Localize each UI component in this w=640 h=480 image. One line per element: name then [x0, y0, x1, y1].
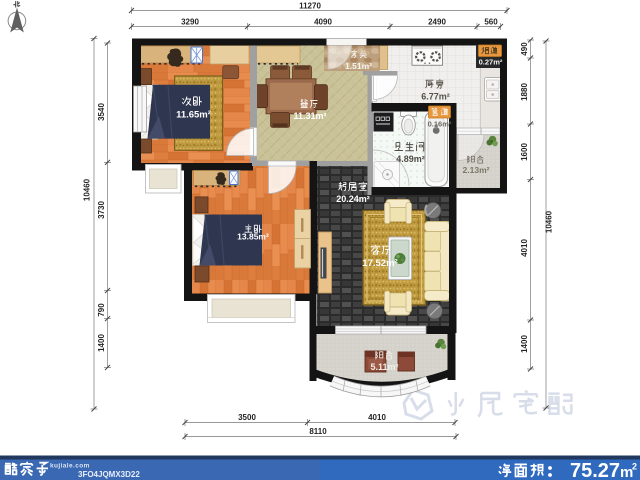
- svg-text:20.24m²: 20.24m²: [336, 194, 370, 204]
- svg-text:3540: 3540: [97, 103, 106, 121]
- svg-text:3290: 3290: [181, 18, 199, 27]
- svg-text:1600: 1600: [520, 143, 529, 161]
- svg-text:0.16m²: 0.16m²: [428, 120, 452, 129]
- svg-text:3500: 3500: [238, 413, 256, 422]
- svg-text:2490: 2490: [428, 18, 446, 27]
- svg-text:4010: 4010: [520, 239, 529, 257]
- svg-text:10460: 10460: [545, 210, 554, 233]
- svg-text:1.51m²: 1.51m²: [345, 61, 372, 71]
- svg-text:6.77m²: 6.77m²: [421, 92, 450, 102]
- svg-text:4010: 4010: [368, 413, 386, 422]
- svg-text:1880: 1880: [520, 83, 529, 101]
- svg-text:3730: 3730: [97, 201, 106, 219]
- svg-text:490: 490: [520, 42, 529, 56]
- svg-text:11270: 11270: [299, 2, 321, 11]
- svg-text:5.11m²: 5.11m²: [370, 362, 398, 372]
- svg-text:17.52m²: 17.52m²: [362, 258, 397, 269]
- svg-text:8110: 8110: [309, 427, 327, 436]
- svg-text:560: 560: [484, 18, 498, 27]
- svg-text:2.13m²: 2.13m²: [463, 165, 490, 175]
- svg-text:2: 2: [632, 462, 637, 472]
- svg-text:1400: 1400: [97, 334, 106, 352]
- svg-text:75.27: 75.27: [570, 460, 620, 480]
- svg-text:790: 790: [97, 303, 106, 317]
- svg-text:kujiale.com: kujiale.com: [50, 463, 90, 470]
- svg-text:10460: 10460: [83, 178, 92, 201]
- svg-text:11.31m²: 11.31m²: [293, 111, 326, 121]
- svg-text:11.65m²: 11.65m²: [176, 110, 211, 121]
- svg-text:4.89m²: 4.89m²: [396, 154, 425, 164]
- svg-text:13.85m²: 13.85m²: [237, 232, 269, 242]
- svg-text:1400: 1400: [520, 335, 529, 353]
- svg-text:3FO4JQMX3D22: 3FO4JQMX3D22: [78, 470, 140, 479]
- svg-text:0.27m²: 0.27m²: [479, 58, 503, 67]
- svg-text:4090: 4090: [314, 18, 332, 27]
